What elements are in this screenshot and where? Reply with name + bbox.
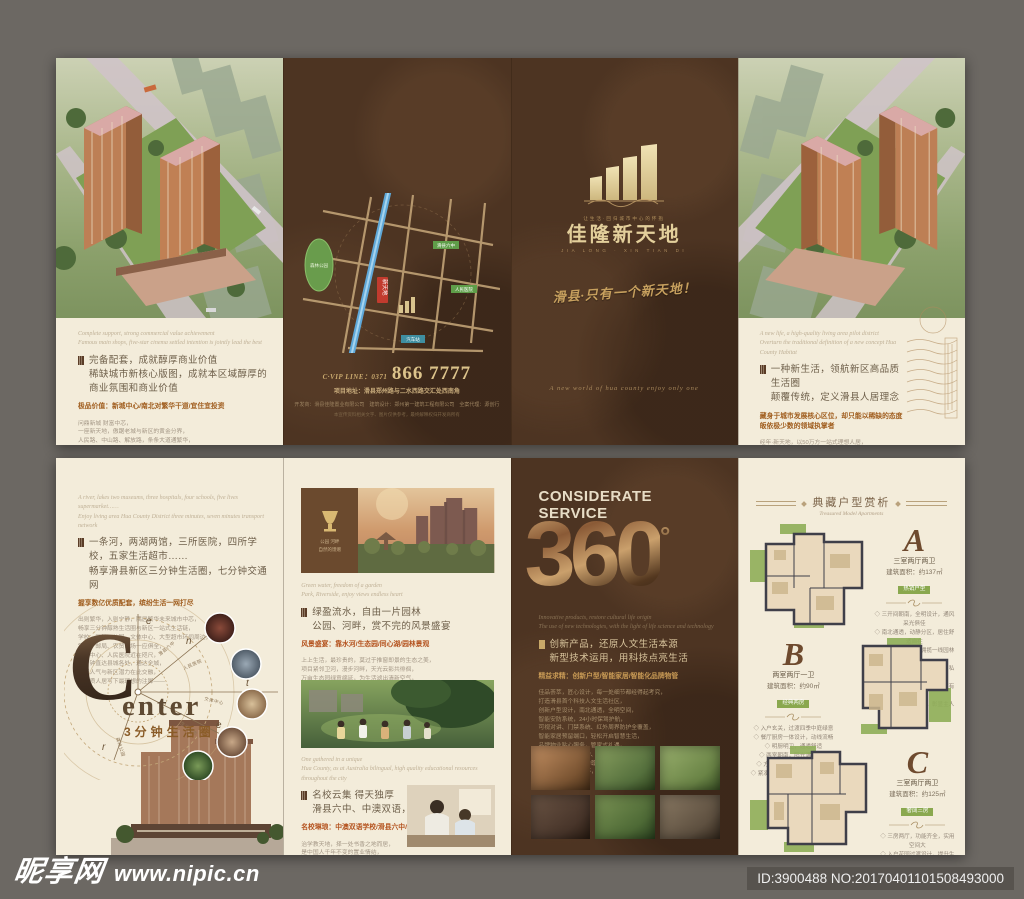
- section-bullet-icon: [760, 365, 766, 374]
- plans-header-script: Treasured Model Apartments: [738, 512, 965, 518]
- building-bars-logo-icon: [578, 138, 670, 212]
- plan-a-letter: A: [874, 524, 955, 556]
- plan-c-area: 建筑面积：约125㎡: [880, 790, 955, 800]
- classroom-photo: [407, 785, 495, 847]
- outer-panel-cover: 让生活·回归城市中心的怀抱 佳隆新天地 JIA LONG · XIN TIAN …: [511, 58, 738, 445]
- plan-a-name: 三室两厅两卫: [874, 557, 955, 568]
- map-label-station: 汽车站: [407, 336, 421, 343]
- commerce-body-text: 问鼎新城 财富中芯， 一座新天地，傲踞老城与新区的黄金分界， 人民路、中山路、解…: [78, 420, 267, 445]
- scenery-value-line: 风景盛宴：靠水河/生态园/同心湖/园林景观: [301, 640, 494, 650]
- floor-plan-c: [750, 746, 874, 852]
- contact-block: C·VIP LINE：0371 866 7777 项目地址：滑县郑州路与二水西路…: [283, 364, 510, 418]
- plan-b-letter: B: [750, 638, 837, 670]
- plan-c-letter: C: [880, 746, 955, 778]
- floor-plan-a: [750, 524, 868, 628]
- schools-english-caption: One gathered in a unique Hua County, as …: [301, 756, 494, 784]
- ring-letter: r: [102, 742, 106, 753]
- center-english-caption: A river, lakes two museums, three hospit…: [78, 494, 267, 531]
- scenery-english-caption: Green water, freedom of a garden Park, R…: [301, 582, 494, 601]
- service-photo-interior: [531, 746, 591, 790]
- ring-label: 人民医院: [182, 657, 203, 672]
- map-label-park: 森林公园: [310, 262, 328, 269]
- center-subtitle: 3分钟生活圈: [124, 726, 215, 738]
- diamond-ornament: [896, 501, 902, 507]
- header-rule-left: [756, 501, 797, 506]
- plans-header: 典藏户型赏析: [756, 498, 947, 509]
- ring-letter: e: [216, 720, 222, 731]
- center-life-circle-graphic: e n t e r 滑县六中 人民医院 文体中心 生活超市 森林公园: [64, 600, 283, 780]
- nipic-site-url[interactable]: www.nipic.cn: [114, 863, 260, 885]
- logo-name: 佳隆新天地: [567, 225, 682, 245]
- project-address: 项目地址：滑县郑州路与二水西路交汇处西南角: [283, 388, 510, 398]
- plan-b-name: 两室两厅一卫: [750, 671, 837, 682]
- scroll-ornament: [886, 599, 942, 607]
- outer-panel-life: A new life, a high-quality living area p…: [738, 58, 965, 445]
- ring-letter: e: [146, 616, 152, 627]
- floor-plan-b: [843, 638, 955, 736]
- inner-panel-plans: 典藏户型赏析 Treasured Model Apartments: [738, 458, 965, 855]
- fine-print: 本宣传资料相关文字、图片仅供参考，最终解释权归开发商所有: [283, 412, 510, 419]
- phone-number: 866 7777: [392, 363, 471, 384]
- section-bullet-icon: [539, 640, 545, 649]
- plan-a-area: 建筑面积：约137㎡: [874, 568, 955, 578]
- section-bullet-icon: [78, 356, 84, 365]
- handwriting-sketch-art: [903, 298, 961, 433]
- nipic-site-name: 昵享网: [12, 858, 106, 887]
- service-photo-planting: [595, 795, 655, 839]
- diamond-ornament: [802, 501, 808, 507]
- center-heading: 一条河，两湖两馆，三所医院，四所学校，五家生活超市…… 畅享滑县新区三分钟生活圈…: [89, 536, 267, 593]
- service-value-line: 精益求精：创新户型/智能家居/智能化品牌物管: [539, 672, 722, 682]
- map-label-hospital: 人民医院: [455, 286, 473, 293]
- header-rule-right: [906, 501, 947, 506]
- section-bullet-icon: [301, 791, 307, 800]
- service-360-graphic: 360°: [525, 508, 671, 600]
- location-map: 森林公园 滑县六中 人民医院 汽车站 新天地: [293, 193, 500, 353]
- plan-row-c: C 三室两厅两卫 建筑面积：约125㎡ 奢阔三房 ◇ 三房两厅，功能齐全，实用空…: [750, 746, 955, 855]
- section-bullet-icon: [301, 608, 307, 617]
- aerial-photo-right-art: [738, 58, 965, 318]
- nipic-watermark: 昵享网 www.nipic.cn: [14, 858, 260, 887]
- inner-panel-center: A river, lakes two museums, three hospit…: [56, 458, 283, 855]
- plan-b-badge: 经典两房: [777, 700, 809, 709]
- inner-panel-scenery: 公园 河畔 自然的馈赠: [283, 458, 510, 855]
- developer-credits: 开发商：滑县佳隆置业有限公司 建筑设计：郑州第一建筑工程有限公司 全案代理：源创…: [283, 401, 510, 409]
- logo-tagline: 让生活·回归城市中心的怀抱: [583, 216, 665, 222]
- map-label-school: 滑县六中: [437, 242, 455, 249]
- plan-c-name: 三室两厅两卫: [880, 779, 955, 790]
- plan-c-details: C 三室两厅两卫 建筑面积：约125㎡ 奢阔三房 ◇ 三房两厅，功能齐全，实用空…: [880, 746, 955, 855]
- life-heading: 一种新生活，领航新区高品质生活圈 颠覆传统，定义滑县人居理念: [771, 363, 903, 406]
- scroll-ornament: [889, 821, 945, 829]
- map-marker-label: 新天地: [381, 279, 389, 296]
- service-photo-hedge-trim: [660, 746, 720, 790]
- commerce-text-block: Complete support, strong commercial valu…: [78, 330, 267, 445]
- commerce-heading: 完备配套，成就醇厚商业价值 稀缺城市新核心版图，成就本区域醇厚的商业氛围和商业价…: [89, 354, 267, 397]
- emblem-box: 公园 河畔 自然的馈赠: [301, 488, 358, 573]
- aerial-photo-left: [56, 58, 283, 318]
- scenery-heading: 绿盈流水，自由一片园林 公园、河畔，赏不完的风景盛宴: [312, 606, 451, 635]
- park-children-photo: [301, 680, 494, 748]
- plan-b-area: 建筑面积：约90㎡: [750, 682, 837, 692]
- sunset-photo-strip: 公园 河畔 自然的馈赠: [301, 488, 494, 573]
- life-body-text: 经年·新天地，以50万方一站式理想人居， 占位城市中芯，回应一座城市的理想， 于…: [760, 439, 903, 445]
- inner-panel-service: CONSIDERATE SERVICE 360° Innovative prod…: [511, 458, 738, 855]
- service-photo-grid: [531, 746, 720, 839]
- emblem-caption: 公园 河畔 自然的馈赠: [319, 538, 342, 552]
- outer-panel-map: 森林公园 滑县六中 人民医院 汽车站 新天地 C·VIP LINE：0371 8…: [283, 58, 510, 445]
- service-heading: 创新产品，还原人文生活本源 新型技术运用，用科技点亮生活: [550, 638, 689, 667]
- plan-c-badge: 奢阔三房: [901, 808, 933, 817]
- sunset-buildings-photo: [358, 488, 494, 573]
- service-english-caption: Innovative products, restore cultural li…: [539, 614, 722, 633]
- brand-logo-block: 让生活·回归城市中心的怀抱 佳隆新天地 JIA LONG · XIN TIAN …: [511, 138, 738, 253]
- schools-body-text: 治学教天地，择一处书香之地而居， 是中国人千年不变的置业情结， 项目周边名校林立…: [301, 841, 413, 855]
- ring-label: 文体中心: [204, 695, 225, 707]
- service-photo-guard: [660, 795, 720, 839]
- plan-a-badge: 热销户型: [898, 586, 930, 595]
- cover-slogan: 滑县·只有一个新天地！: [511, 278, 738, 307]
- life-text-block: A new life, a high-quality living area p…: [760, 330, 903, 445]
- plan-c-bullets: ◇ 三房两厅，功能齐全，实用空间大 ◇ 入户花园过渡设计，提升生活仪式感 ◇ 餐…: [880, 833, 955, 855]
- service-photo-gardening: [595, 746, 655, 790]
- plans-header-title: 典藏户型赏析: [812, 498, 890, 509]
- ring-label: 滑县六中: [157, 639, 177, 657]
- brochure-inner-spread: A river, lakes two museums, three hospit…: [56, 458, 965, 855]
- gold-emblem-icon: [319, 508, 341, 534]
- service-photo-security-monitor: [531, 795, 591, 839]
- logo-subtitle: JIA LONG · XIN TIAN DI: [561, 248, 687, 253]
- service-360-number: 360: [525, 503, 661, 605]
- image-id-badge: ID:3900488 NO:20170401101508493000: [747, 867, 1014, 890]
- cover-english-script: A new world of hua county enjoy only one: [511, 386, 738, 393]
- life-english-caption: A new life, a high-quality living area p…: [760, 330, 903, 358]
- degree-symbol: °: [660, 521, 670, 551]
- aerial-photo-right: [738, 58, 965, 323]
- ring-letter: n: [186, 636, 192, 647]
- life-value-line: 藏身于城市发展核心区位，却只能以稀缺的态度皈依极少数的领域执掌者: [760, 412, 903, 432]
- center-word: enter: [122, 692, 201, 721]
- section-bullet-icon: [78, 538, 84, 547]
- brochure-outer-spread: Complete support, strong commercial valu…: [56, 58, 965, 445]
- commerce-value-line: 极品价值：新城中心/南北对繁华干道/宜住宜投资: [78, 402, 267, 412]
- vip-line-label: C·VIP LINE：0371: [323, 373, 388, 381]
- scroll-ornament: [765, 713, 821, 721]
- outer-panel-commerce: Complete support, strong commercial valu…: [56, 58, 283, 445]
- commerce-english-caption: Complete support, strong commercial valu…: [78, 330, 267, 349]
